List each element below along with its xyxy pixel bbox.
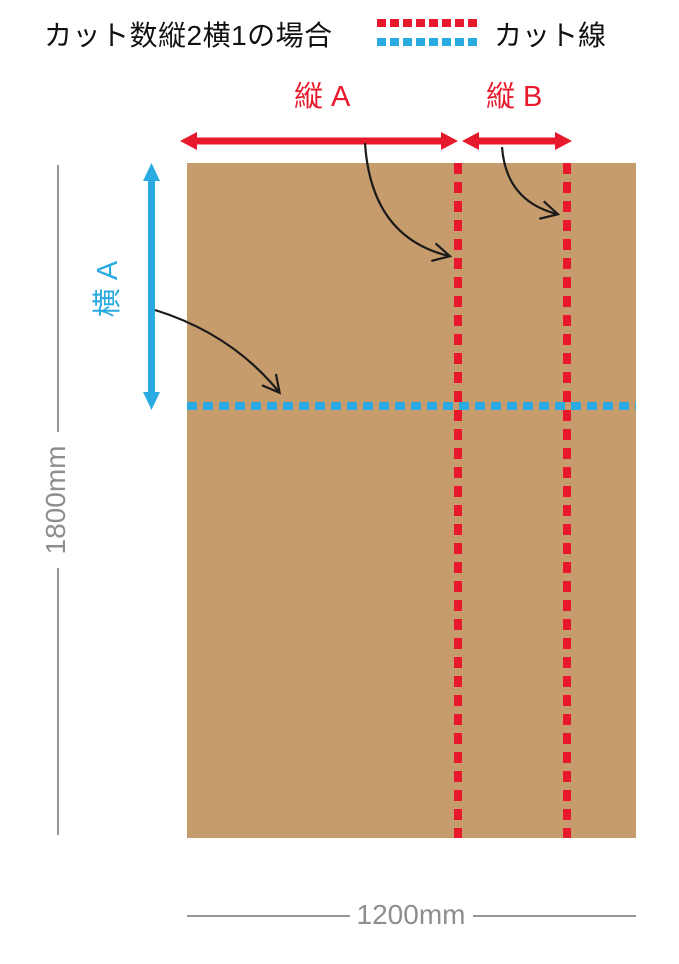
arrowhead-right-icon xyxy=(441,132,458,150)
arrowhead-left-icon xyxy=(180,132,197,150)
arrowhead-up-icon xyxy=(143,163,160,181)
label-vertical-b: 縦 B xyxy=(486,73,542,115)
vertical-cut-line-2 xyxy=(563,163,571,838)
width-dimension-line-right xyxy=(473,915,636,917)
width-dimension-line-left xyxy=(187,915,350,917)
cutting-diagram: カット数縦2横1の場合 カット線 縦 A 縦 B 横 A 1800mm 1200… xyxy=(0,0,679,964)
height-dimension-line-top xyxy=(57,165,59,432)
label-vertical-a: 縦 A xyxy=(294,73,350,115)
vertical-cut-line-1 xyxy=(454,163,462,838)
span-arrow-vertical-b xyxy=(462,132,572,150)
legend-blue-dash-icon xyxy=(377,38,478,46)
height-dimension-line-bottom xyxy=(57,568,59,835)
diagram-title: カット数縦2横1の場合 xyxy=(44,14,333,54)
legend-red-dash-icon xyxy=(377,19,478,27)
span-arrow-vertical-a xyxy=(180,132,458,150)
span-arrow-horizontal-a xyxy=(143,163,160,410)
width-dimension-label: 1200mm xyxy=(351,899,471,931)
height-dimension-label: 1800mm xyxy=(40,420,72,580)
label-horizontal-a: 横 A xyxy=(92,209,124,369)
legend-label: カット線 xyxy=(494,14,606,54)
arrowhead-down-icon xyxy=(143,392,160,410)
arrowhead-left-icon xyxy=(462,132,479,150)
arrowhead-right-icon xyxy=(555,132,572,150)
